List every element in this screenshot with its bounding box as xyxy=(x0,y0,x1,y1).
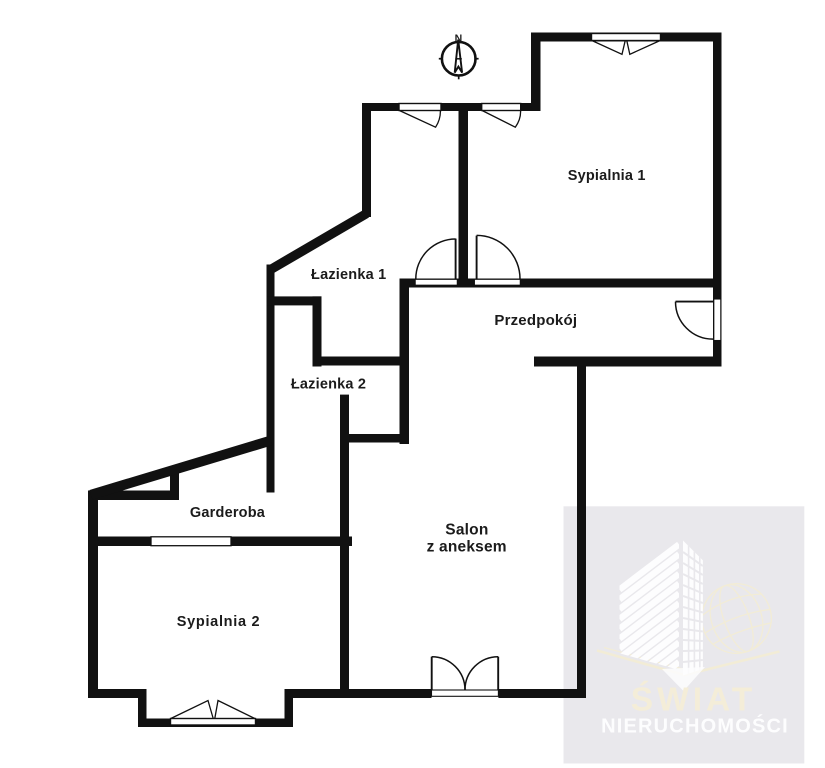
svg-text:Sypialnia 1: Sypialnia 1 xyxy=(568,168,646,184)
svg-text:ŚWIAT: ŚWIAT xyxy=(631,681,756,719)
svg-text:Łazienka 1: Łazienka 1 xyxy=(311,267,386,283)
svg-text:Łazienka 2: Łazienka 2 xyxy=(291,377,366,393)
svg-text:N: N xyxy=(455,32,463,44)
svg-text:Salon: Salon xyxy=(445,522,488,539)
svg-text:Przedpokój: Przedpokój xyxy=(494,312,577,329)
svg-text:Garderoba: Garderoba xyxy=(190,505,266,521)
svg-text:z aneksem: z aneksem xyxy=(427,539,507,556)
svg-text:NIERUCHOMOŚCI: NIERUCHOMOŚCI xyxy=(601,714,789,738)
svg-text:Sypialnia 2: Sypialnia 2 xyxy=(177,614,260,630)
